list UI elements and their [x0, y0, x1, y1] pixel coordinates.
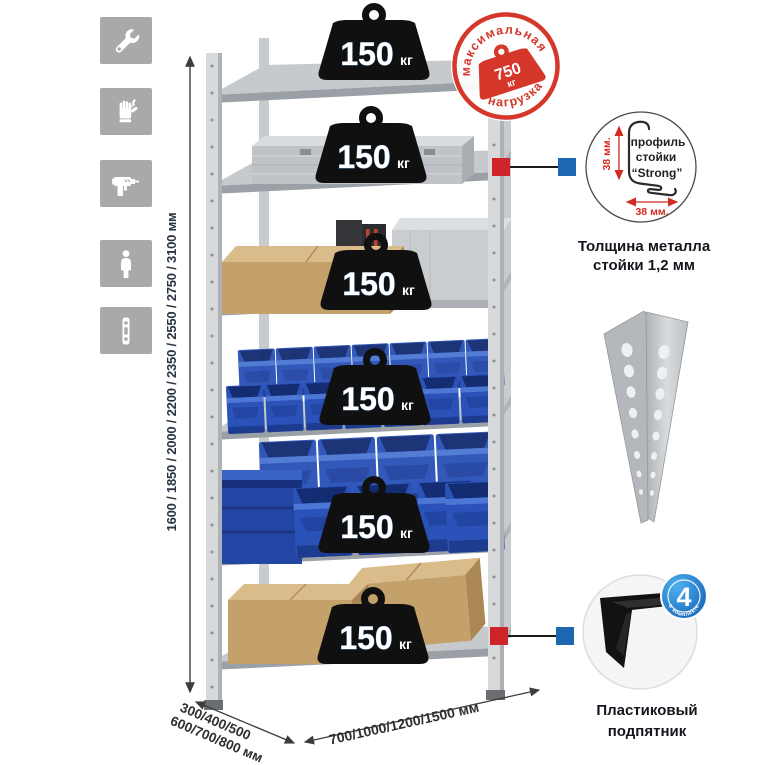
svg-text:кг: кг: [397, 155, 410, 171]
svg-text:700/1000/1200/1500 мм: 700/1000/1200/1500 мм: [327, 699, 480, 748]
height-dimension: 1600 / 1850 / 2000 / 2200 / 2350 / 2550 …: [164, 57, 190, 692]
foot-caption-line2: подпятник: [608, 723, 687, 740]
svg-text:150: 150: [342, 266, 395, 302]
infographic-canvas: 1600 / 1850 / 2000 / 2200 / 2350 / 2550 …: [0, 0, 765, 765]
svg-text:“Strong”: “Strong”: [632, 166, 683, 180]
shelving-infographic: 1600 / 1850 / 2000 / 2200 / 2350 / 2550 …: [0, 0, 765, 765]
svg-text:4: 4: [676, 582, 691, 612]
svg-text:профиль: профиль: [631, 135, 686, 149]
connector-bottom-blue-square: [556, 627, 574, 645]
height-dimension-label: 1600 / 1850 / 2000 / 2200 / 2350 / 2550 …: [164, 213, 179, 532]
load-badge-2: 150 кг: [316, 110, 427, 184]
quantity-badge: 4 в комплекте: [661, 573, 707, 619]
connector-top-blue-square: [558, 158, 576, 176]
foot-detail: 4 в комплекте: [583, 573, 707, 689]
svg-text:кг: кг: [399, 636, 412, 652]
depth-dimension: 300/400/500 600/700/800 мм: [168, 698, 294, 765]
svg-text:150: 150: [339, 620, 392, 656]
profile-detail: 38 мм. 38 мм. профиль стойки “Strong”: [586, 112, 696, 222]
svg-text:кг: кг: [401, 397, 414, 413]
svg-text:кг: кг: [402, 282, 415, 298]
connector-bottom-red-square: [490, 627, 508, 645]
svg-text:150: 150: [340, 36, 393, 72]
front-left-upright: [204, 53, 223, 710]
connector-top: [492, 158, 576, 176]
front-right-upright: [486, 50, 505, 700]
max-load-stamp: максимальная нагрузка 750 кг: [437, 0, 576, 135]
svg-text:стойки: стойки: [636, 150, 676, 164]
svg-text:кг: кг: [400, 52, 413, 68]
connector-top-red-square: [492, 158, 510, 176]
foot-caption-line1: Пластиковый: [596, 702, 697, 719]
connector-bottom: [490, 627, 574, 645]
profile-caption-line2: стойки 1,2 мм: [593, 257, 695, 274]
profile-dim-vertical: 38 мм.: [601, 137, 613, 170]
svg-text:кг: кг: [400, 525, 413, 541]
svg-text:150: 150: [340, 509, 393, 545]
svg-text:150: 150: [341, 381, 394, 417]
svg-text:150: 150: [337, 139, 390, 175]
load-badge-1: 150 кг: [319, 7, 430, 81]
profile-dim-horizontal: 38 мм.: [635, 206, 668, 218]
profile-caption-line1: Толщина металла: [578, 238, 711, 255]
corner-post-photo: [604, 311, 688, 523]
